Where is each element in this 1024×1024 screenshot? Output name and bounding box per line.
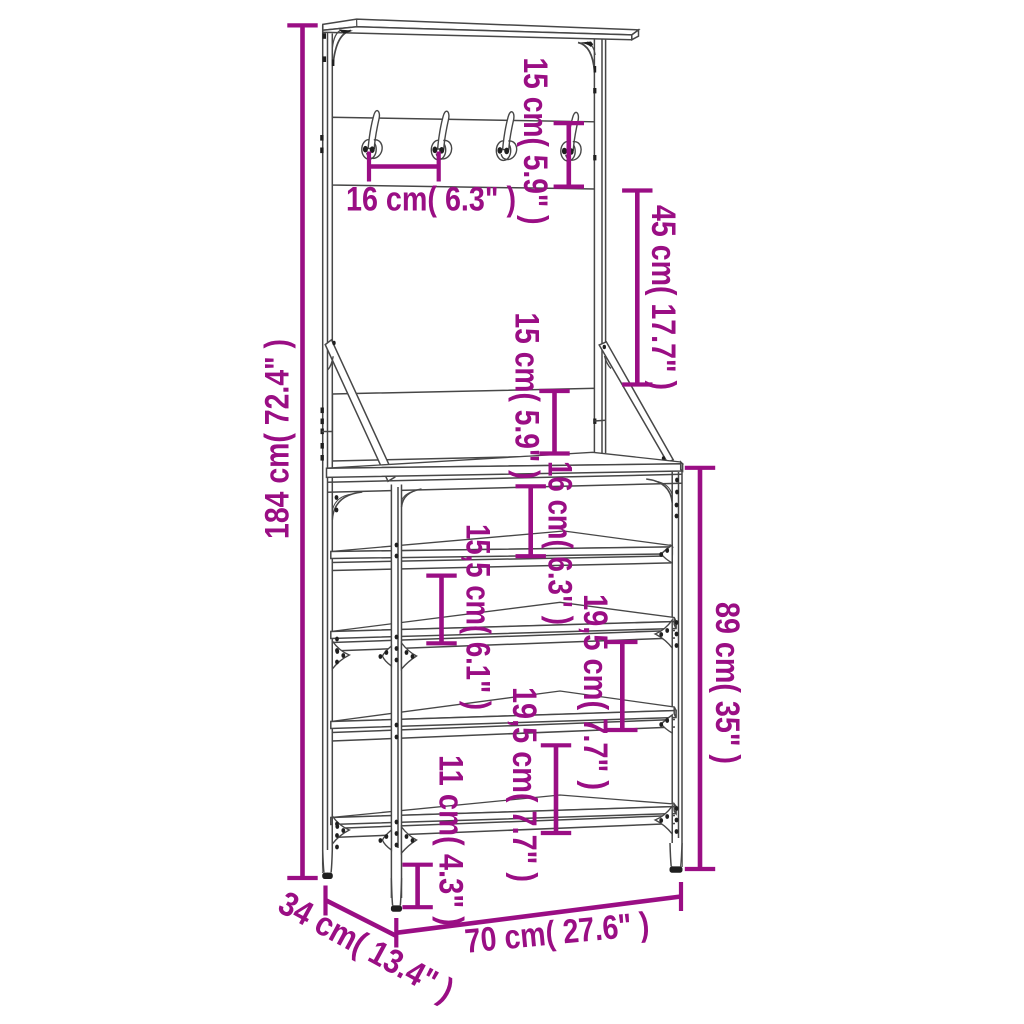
svg-text:15,5 cm( 6.1" ): 15,5 cm( 6.1" )	[459, 524, 497, 710]
svg-text:45 cm( 17.7" ): 45 cm( 17.7" )	[644, 205, 682, 390]
svg-text:11 cm( 4.3" ): 11 cm( 4.3" )	[432, 755, 470, 926]
svg-text:70 cm( 27.6" ): 70 cm( 27.6" )	[463, 905, 651, 961]
svg-text:89 cm( 35" ): 89 cm( 35" )	[708, 602, 746, 764]
svg-text:15 cm( 5.9" ): 15 cm( 5.9" )	[508, 313, 546, 480]
svg-text:19,5 cm( 7.7" ): 19,5 cm( 7.7" )	[505, 687, 543, 882]
svg-text:184 cm( 72.4" ): 184 cm( 72.4" )	[259, 339, 297, 539]
svg-text:16 cm( 6.3" ): 16 cm( 6.3" )	[541, 461, 579, 625]
svg-text:15 cm( 5.9" ): 15 cm( 5.9" )	[516, 58, 554, 225]
svg-text:19,5 cm( 7.7" ): 19,5 cm( 7.7" )	[576, 594, 614, 790]
svg-text:16 cm( 6.3" ): 16 cm( 6.3" )	[346, 181, 516, 219]
